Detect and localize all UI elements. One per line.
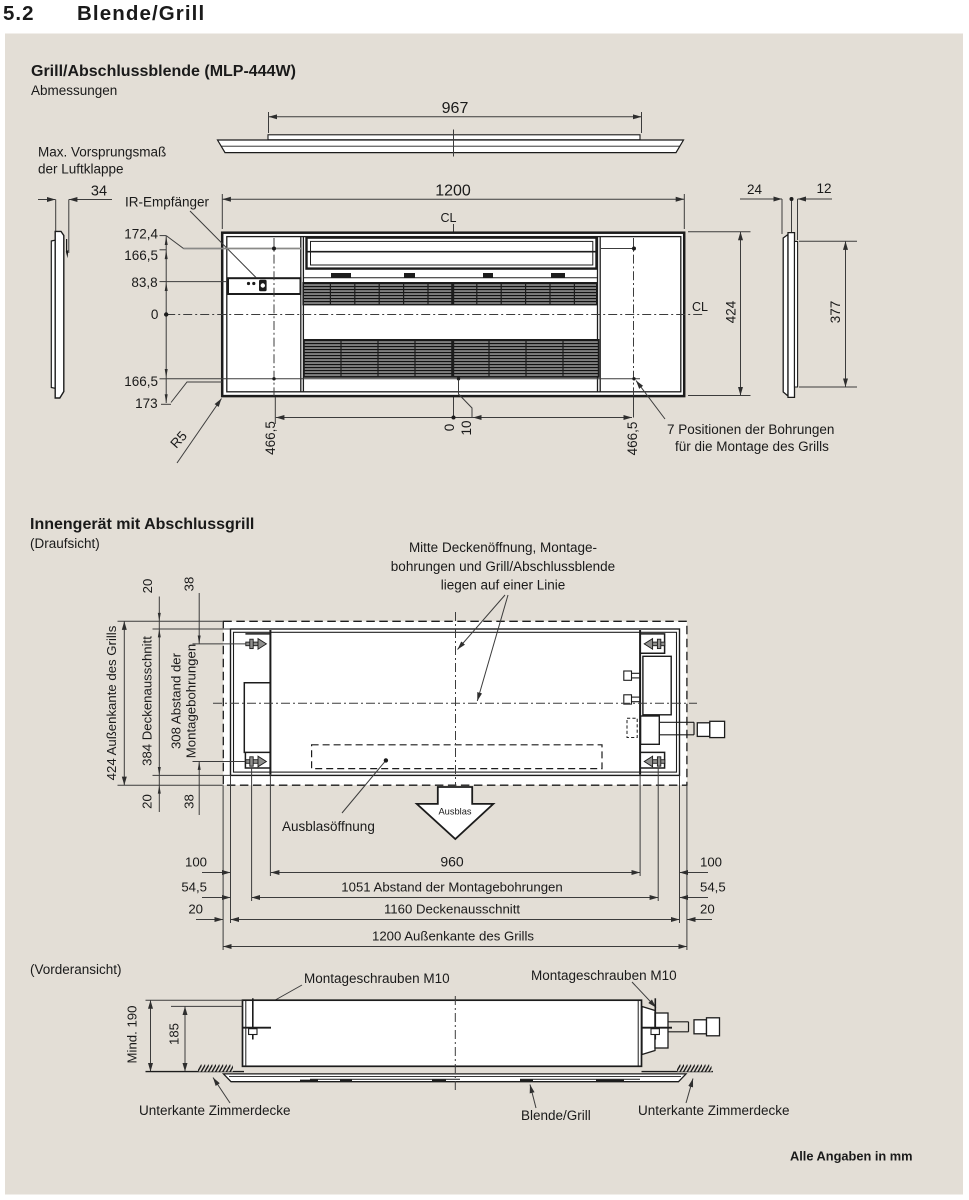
svg-text:für die Montage des Grills: für die Montage des Grills: [675, 439, 829, 454]
svg-text:54,5: 54,5: [700, 880, 726, 895]
svg-text:185: 185: [167, 1023, 182, 1045]
svg-text:1200: 1200: [435, 182, 471, 199]
svg-text:384 Deckenausschnitt: 384 Deckenausschnitt: [140, 636, 155, 766]
svg-text:466,5: 466,5: [263, 421, 278, 455]
svg-text:960: 960: [440, 854, 464, 870]
svg-text:Unterkante Zimmerdecke: Unterkante Zimmerdecke: [139, 1103, 291, 1118]
svg-text:Mitte Deckenöffnung, Montage-: Mitte Deckenöffnung, Montage-: [409, 540, 597, 555]
svg-text:1160 Deckenausschnitt: 1160 Deckenausschnitt: [384, 902, 520, 917]
svg-text:(Draufsicht): (Draufsicht): [30, 536, 100, 551]
svg-text:(Vorderansicht): (Vorderansicht): [30, 962, 122, 977]
svg-text:1200 Außenkante des Grills: 1200 Außenkante des Grills: [372, 929, 534, 944]
svg-text:424: 424: [724, 300, 739, 323]
svg-text:20: 20: [140, 794, 155, 809]
svg-text:34: 34: [91, 184, 107, 200]
svg-text:7 Positionen der Bohrungen: 7 Positionen der Bohrungen: [667, 422, 834, 437]
svg-text:Grill/Abschlussblende (MLP-444: Grill/Abschlussblende (MLP-444W): [31, 63, 296, 80]
svg-text:liegen auf einer Linie: liegen auf einer Linie: [441, 578, 566, 593]
svg-text:20: 20: [140, 579, 155, 594]
svg-text:Mind. 190: Mind. 190: [125, 1006, 140, 1064]
svg-text:CL: CL: [441, 211, 457, 225]
svg-text:308 Abstand der: 308 Abstand der: [169, 652, 184, 749]
svg-text:10: 10: [459, 420, 474, 435]
svg-text:der Luftklappe: der Luftklappe: [38, 162, 124, 177]
svg-text:Ausblas: Ausblas: [438, 807, 471, 817]
svg-text:Alle Angaben in mm: Alle Angaben in mm: [790, 1149, 913, 1164]
svg-text:Montageschrauben M10: Montageschrauben M10: [304, 971, 450, 986]
svg-text:24: 24: [747, 182, 763, 197]
svg-text:377: 377: [828, 301, 843, 324]
svg-text:0: 0: [151, 307, 159, 322]
svg-text:466,5: 466,5: [625, 422, 640, 456]
svg-text:bohrungen und Grill/Abschlussb: bohrungen und Grill/Abschlussblende: [391, 559, 615, 574]
svg-text:20: 20: [188, 902, 203, 917]
svg-text:0: 0: [442, 424, 457, 432]
svg-text:20: 20: [700, 902, 715, 917]
svg-text:Innengerät mit Abschlussgrill: Innengerät mit Abschlussgrill: [30, 516, 254, 533]
svg-text:Abmessungen: Abmessungen: [31, 83, 117, 98]
svg-text:38: 38: [182, 794, 197, 809]
svg-text:CL: CL: [692, 300, 708, 314]
svg-text:172,4: 172,4: [124, 227, 158, 242]
svg-text:Max. Vorsprungsmaß: Max. Vorsprungsmaß: [38, 145, 166, 160]
svg-text:166,5: 166,5: [124, 248, 158, 263]
svg-text:54,5: 54,5: [181, 880, 207, 895]
svg-text:166,5: 166,5: [124, 374, 158, 389]
svg-text:1051 Abstand der Montagebohrun: 1051 Abstand der Montagebohrungen: [341, 880, 562, 895]
svg-text:100: 100: [700, 855, 722, 870]
svg-text:38: 38: [182, 577, 197, 592]
svg-text:Blende/Grill: Blende/Grill: [521, 1108, 591, 1123]
svg-text:Montagebohrungen: Montagebohrungen: [184, 644, 199, 758]
svg-text:12: 12: [816, 181, 831, 196]
svg-text:83,8: 83,8: [131, 275, 157, 290]
svg-text:424 Außenkante des Grills: 424 Außenkante des Grills: [104, 625, 119, 780]
svg-text:Montageschrauben M10: Montageschrauben M10: [531, 968, 677, 983]
svg-text:Ausblasöffnung: Ausblasöffnung: [282, 819, 375, 834]
svg-text:173: 173: [135, 396, 158, 411]
svg-text:967: 967: [442, 100, 469, 117]
svg-text:IR-Empfänger: IR-Empfänger: [125, 195, 210, 210]
svg-text:100: 100: [185, 855, 207, 870]
svg-text:5.2: 5.2: [3, 2, 35, 25]
svg-text:Unterkante Zimmerdecke: Unterkante Zimmerdecke: [638, 1103, 790, 1118]
svg-text:Blende/Grill: Blende/Grill: [77, 2, 205, 25]
